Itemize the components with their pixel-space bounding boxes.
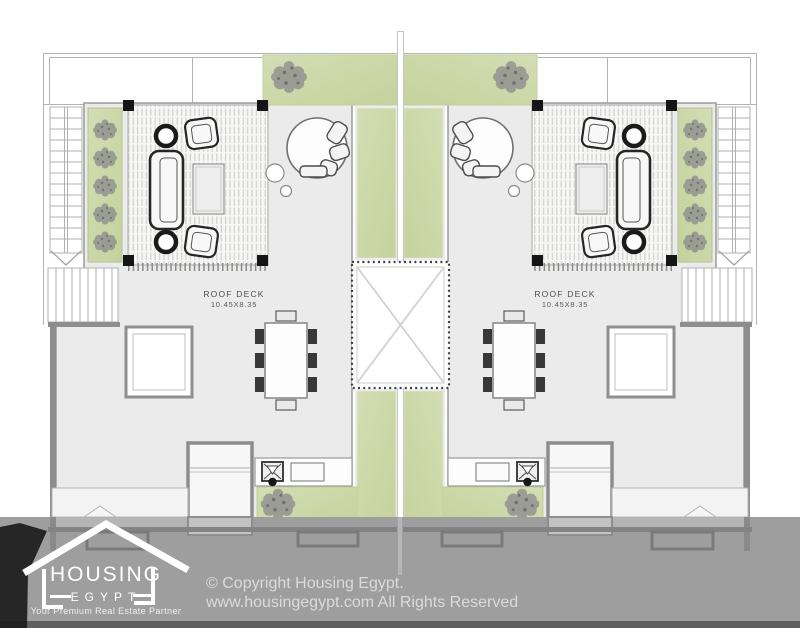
logo-tagline: Your Premium Real Estate Partner — [23, 606, 189, 616]
floor-plan-drawing — [0, 0, 800, 628]
unit-right-label: ROOF DECK — [507, 289, 623, 299]
bottom-edge-strip — [0, 621, 800, 628]
central-void — [352, 262, 449, 388]
logo-brand-sub: EGYPT — [40, 590, 172, 604]
roof-deck-floor-plan: ROOF DECK 10.45X8.35 ROOF DECK 10.45X8.3… — [0, 0, 800, 628]
copyright-line-1: © Copyright Housing Egypt. — [206, 575, 404, 593]
unit-left-label: ROOF DECK — [176, 289, 292, 299]
unit-right-dimensions: 10.45X8.35 — [507, 300, 623, 310]
copyright-line-2: www.housingegypt.com All Rights Reserved — [206, 594, 518, 612]
logo-brand-name: HOUSING — [40, 563, 172, 587]
unit-left-dimensions: 10.45X8.35 — [176, 300, 292, 310]
